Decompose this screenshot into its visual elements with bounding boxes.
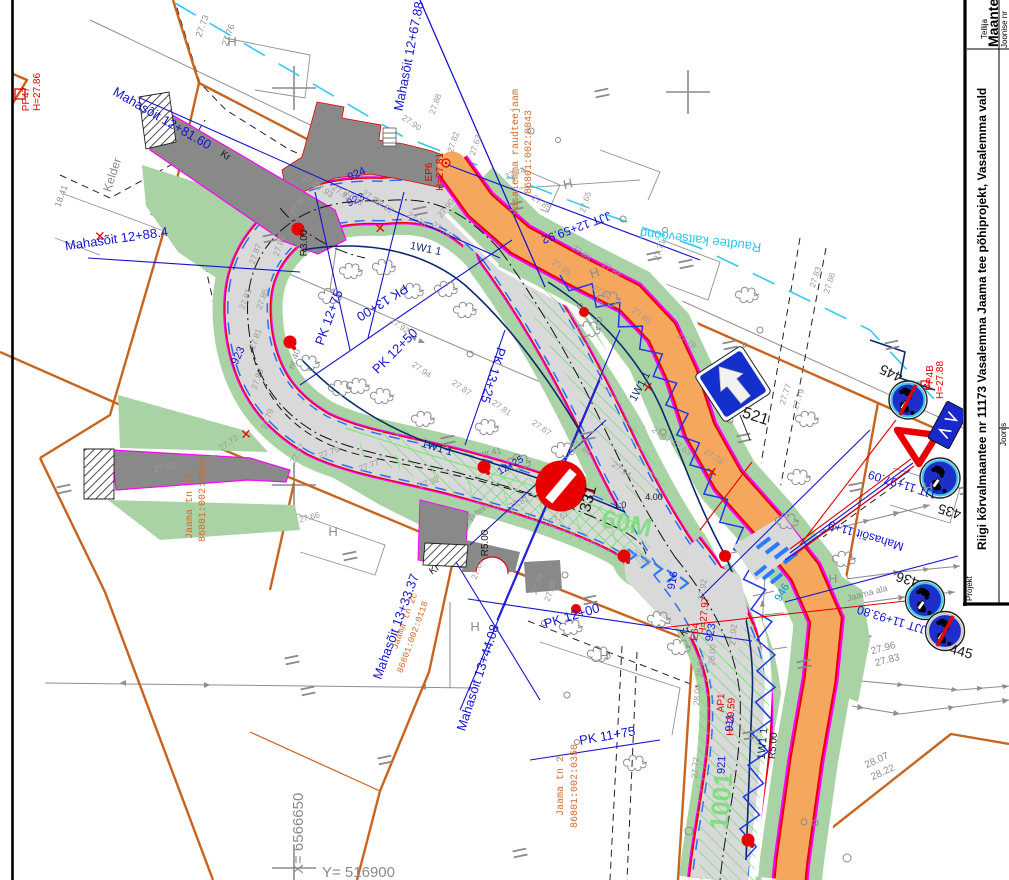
svg-text:28.00: 28.00: [691, 683, 703, 705]
svg-text:H=27.88: H=27.88: [935, 361, 946, 400]
svg-text:Vasalemma raudteejaam: Vasalemma raudteejaam: [510, 89, 522, 215]
svg-text:Jaama tn 2b: Jaama tn 2b: [184, 473, 196, 539]
svg-text:EP6: EP6: [424, 162, 435, 181]
svg-text:86801:002:0060: 86801:002:0060: [198, 458, 209, 542]
svg-text:H=27.86: H=27.86: [32, 73, 43, 112]
svg-text:27.72: 27.72: [689, 756, 701, 778]
svg-text:28.00: 28.00: [706, 643, 718, 665]
svg-text:27.92: 27.92: [727, 623, 739, 645]
svg-text:PP47: PP47: [21, 86, 32, 111]
svg-text:H: H: [470, 619, 479, 634]
svg-text:H: H: [923, 480, 932, 495]
svg-text:Projekt: Projekt: [965, 575, 974, 601]
svg-text:Jaama tn 2: Jaama tn 2: [556, 756, 567, 816]
svg-text:1001: 1001: [704, 771, 739, 831]
svg-text:H=27.81: H=27.81: [435, 153, 446, 192]
svg-text:R3.00: R3.00: [299, 229, 310, 256]
svg-text:R5.00: R5.00: [480, 529, 491, 556]
svg-text:H: H: [599, 648, 608, 663]
svg-text:H: H: [829, 572, 838, 586]
svg-text:Maante: Maante: [985, 0, 1001, 47]
svg-text:4.00: 4.00: [645, 492, 663, 502]
svg-text:H=29.59: H=29.59: [725, 697, 737, 736]
svg-text:921: 921: [716, 756, 729, 775]
svg-text:86801:002:0350: 86801:002:0350: [570, 744, 581, 828]
svg-text:Joonise nr: Joonise nr: [1000, 11, 1009, 48]
svg-text:86801:002:0043: 86801:002:0043: [524, 110, 535, 194]
svg-text:X= 6566650: X= 6566650: [290, 793, 307, 874]
svg-text:Y= 516900: Y= 516900: [322, 864, 395, 880]
svg-text:Riigi kõrvalmaantee nr 11173 V: Riigi kõrvalmaantee nr 11173 Vasalemma J…: [975, 88, 989, 550]
svg-text:28.06: 28.06: [694, 655, 706, 677]
svg-text:Joonis: Joonis: [999, 423, 1008, 446]
svg-text:H: H: [328, 524, 337, 539]
